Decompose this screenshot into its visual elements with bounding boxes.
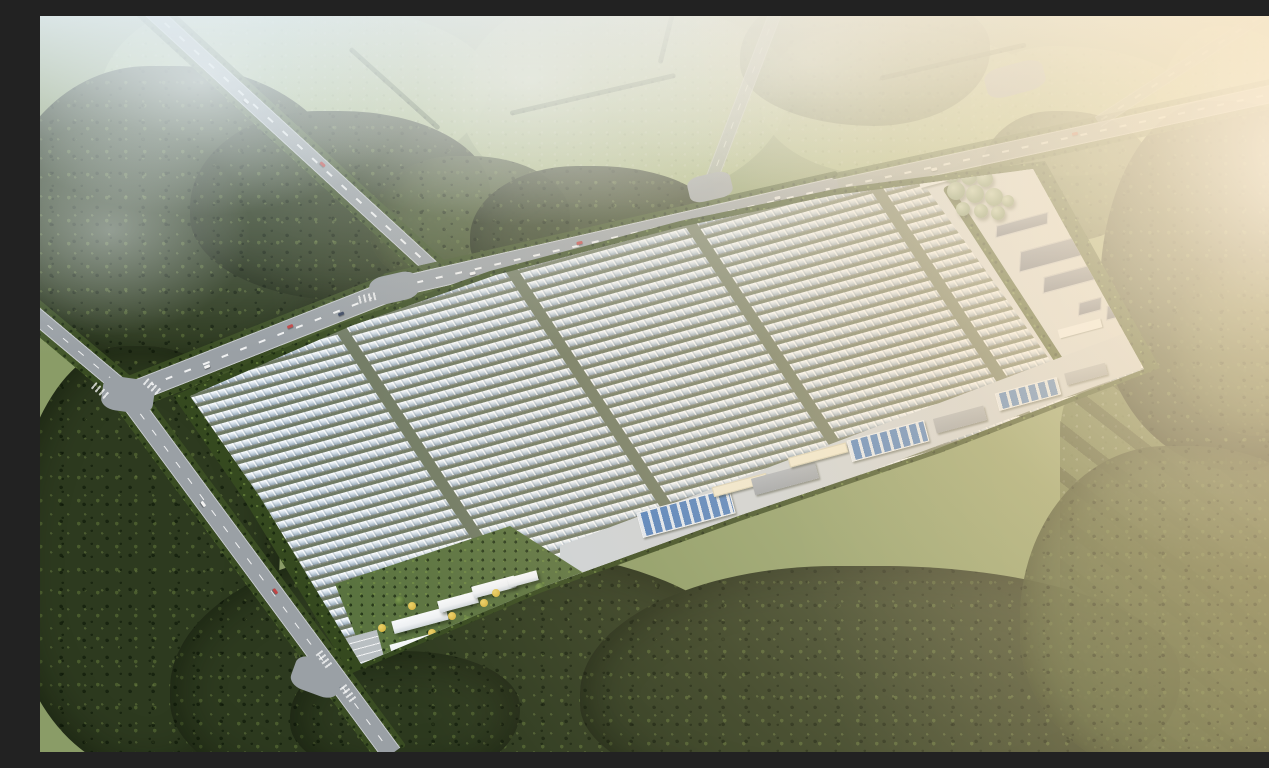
storage-tank: [956, 202, 970, 216]
ornamental-tree-yellow: [448, 612, 456, 620]
storage-tank: [974, 204, 988, 218]
aerial-rendering-scene: [40, 16, 1269, 752]
ornamental-tree-yellow: [408, 602, 416, 610]
greenhouse-row: [711, 518, 882, 570]
storage-tank: [1002, 195, 1014, 207]
greenhouse-row: [878, 454, 1049, 506]
storage-tank: [977, 171, 993, 187]
ornamental-tree-green: [395, 596, 405, 606]
storage-tank: [985, 188, 1003, 206]
ornamental-tree-yellow: [480, 599, 488, 607]
forest-patch: [1020, 446, 1269, 752]
storage-tank: [991, 206, 1005, 220]
greenhouse-row: [891, 474, 1062, 526]
greenhouse-row: [885, 464, 1056, 516]
ornamental-tree-yellow: [492, 589, 500, 597]
ornamental-tree-yellow: [378, 624, 386, 632]
storage-tank: [947, 182, 965, 200]
storage-tank: [966, 185, 984, 203]
ornamental-tree-green: [535, 583, 545, 593]
ornamental-tree-yellow: [428, 629, 436, 637]
